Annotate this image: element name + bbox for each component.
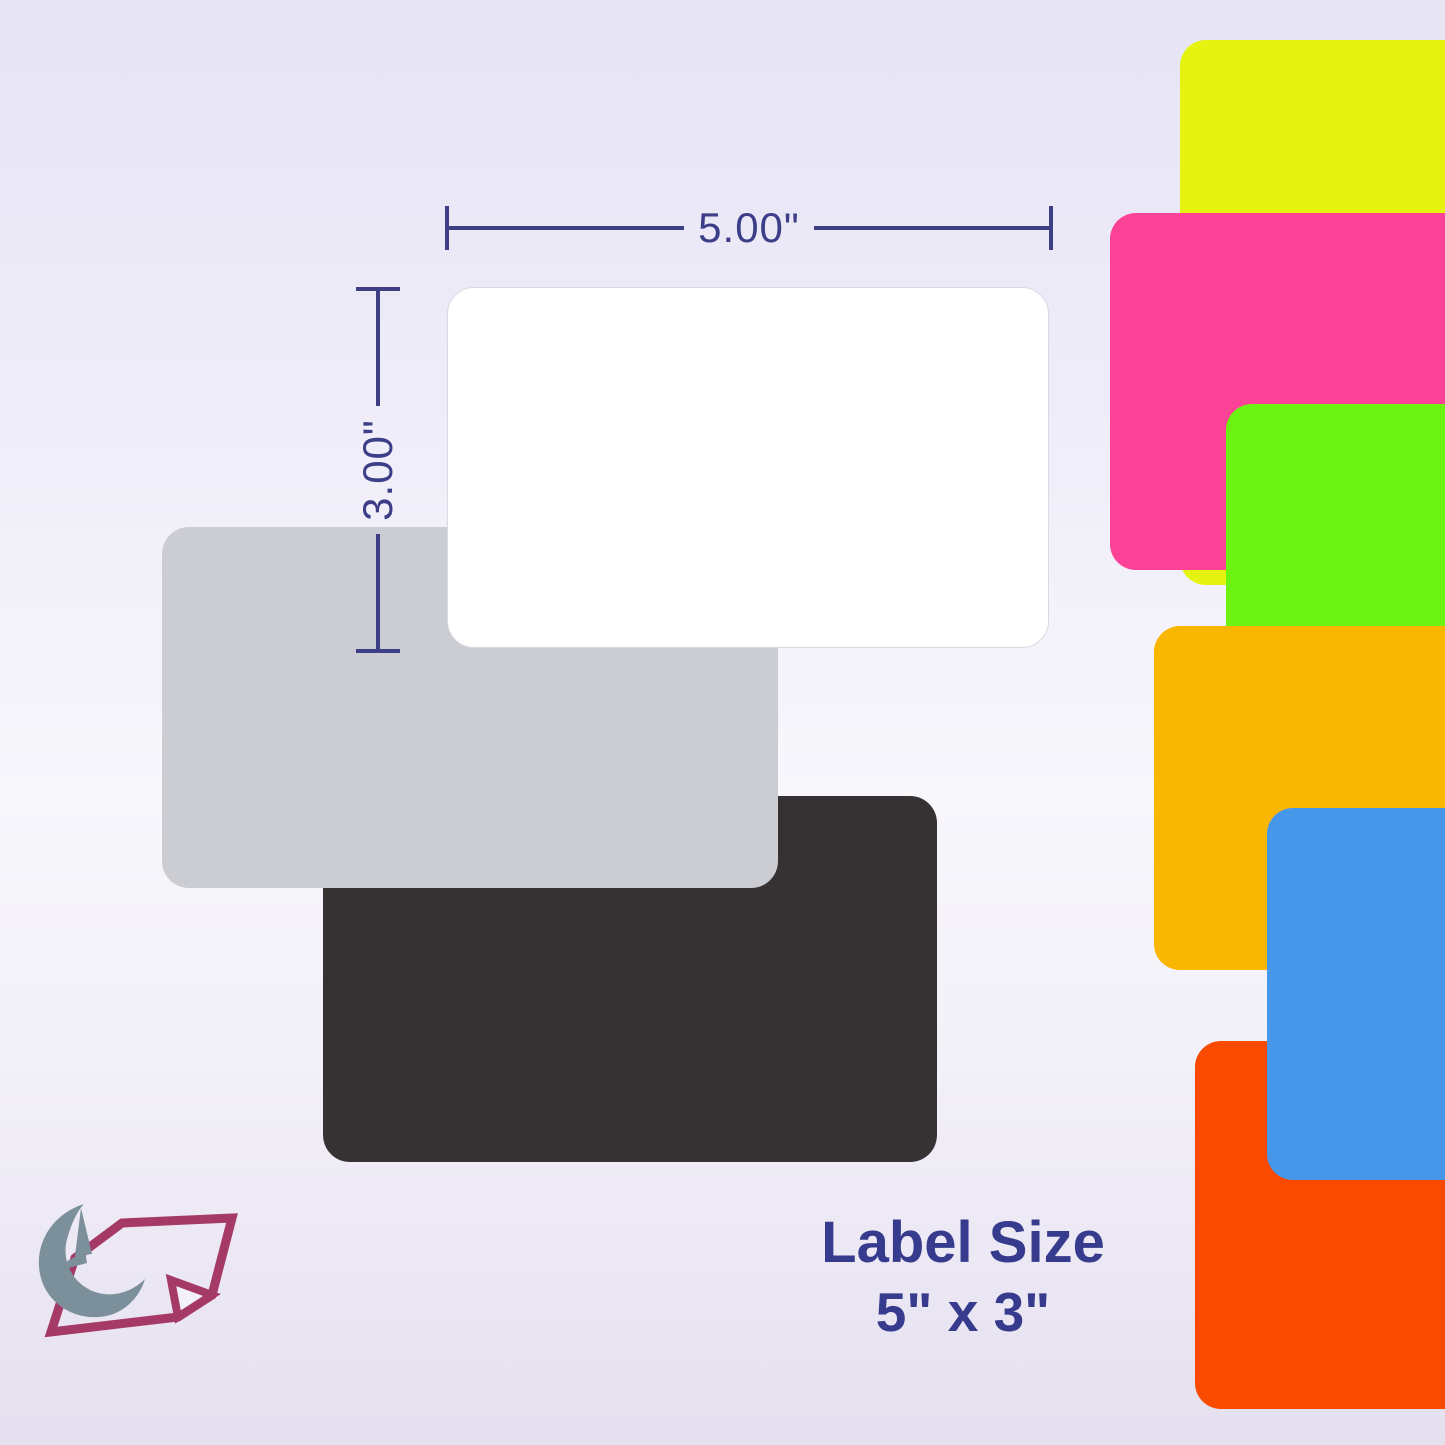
swatch-blue (1267, 808, 1445, 1180)
caption: Label Size 5" x 3" (740, 1208, 1186, 1346)
dimension-tick-bottom (356, 649, 400, 653)
caption-label-size: Label Size (740, 1208, 1186, 1279)
white-label-card (447, 287, 1049, 648)
product-graphic: 5.00" 3.00" Label Size 5" x 3" (0, 0, 1445, 1445)
dimension-line-segment (814, 226, 1049, 230)
width-dimension: 5.00" (445, 206, 1053, 250)
width-dimension-label: 5.00" (684, 204, 814, 252)
height-dimension-label-box: 3.00" (356, 406, 400, 534)
height-dimension-label: 3.00" (354, 419, 402, 521)
dimension-tick-right (1049, 206, 1053, 250)
dimension-line-segment (376, 291, 380, 406)
dimension-line-segment (449, 226, 684, 230)
dimension-line-segment (376, 534, 380, 649)
brand-logo (32, 1196, 268, 1346)
height-dimension: 3.00" (356, 287, 400, 653)
caption-size-value: 5" x 3" (740, 1279, 1186, 1346)
